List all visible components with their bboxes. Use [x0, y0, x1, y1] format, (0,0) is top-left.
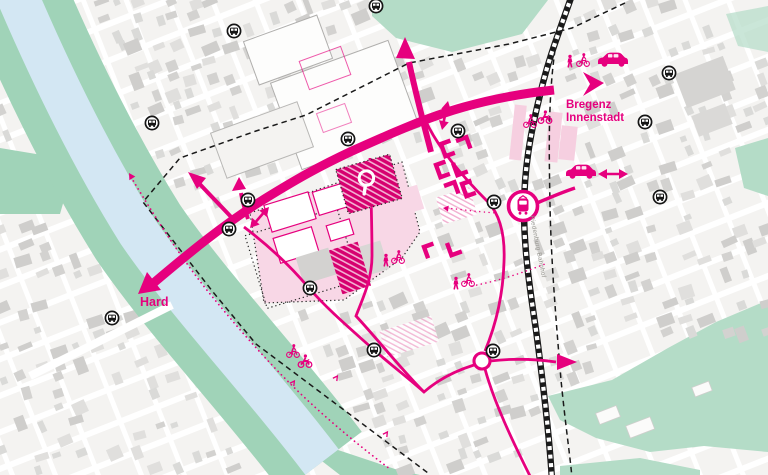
label-bregenz-innenstadt-line2: Innenstadt	[566, 112, 624, 124]
bus-stop-icon	[369, 0, 382, 13]
bus-stop-icon	[145, 116, 158, 129]
bus-stop-icon	[638, 115, 651, 128]
bus-stop-icon	[303, 281, 316, 294]
bus-stop-icon	[227, 24, 240, 37]
label-bregenz-innenstadt-line1: Bregenz	[566, 99, 612, 111]
bus-stop-icon	[487, 195, 500, 208]
map-canvas: Bregenz Innenstadt Hard Riedenburg Bahnh…	[0, 0, 768, 475]
bus-stop-icon	[222, 222, 235, 235]
bus-stop-icon	[341, 132, 354, 145]
mobility-plan-map: Bregenz Innenstadt Hard Riedenburg Bahnh…	[0, 0, 768, 475]
label-hard: Hard	[140, 295, 168, 309]
bus-stop-icon	[105, 311, 118, 324]
bus-stop-icon	[662, 66, 675, 79]
bus-stop-icon	[486, 344, 499, 357]
bus-stop-icon	[653, 190, 666, 203]
bus-stop-icon	[367, 343, 380, 356]
bus-stop-icon	[241, 193, 254, 206]
bus-stop-icon	[451, 124, 464, 137]
